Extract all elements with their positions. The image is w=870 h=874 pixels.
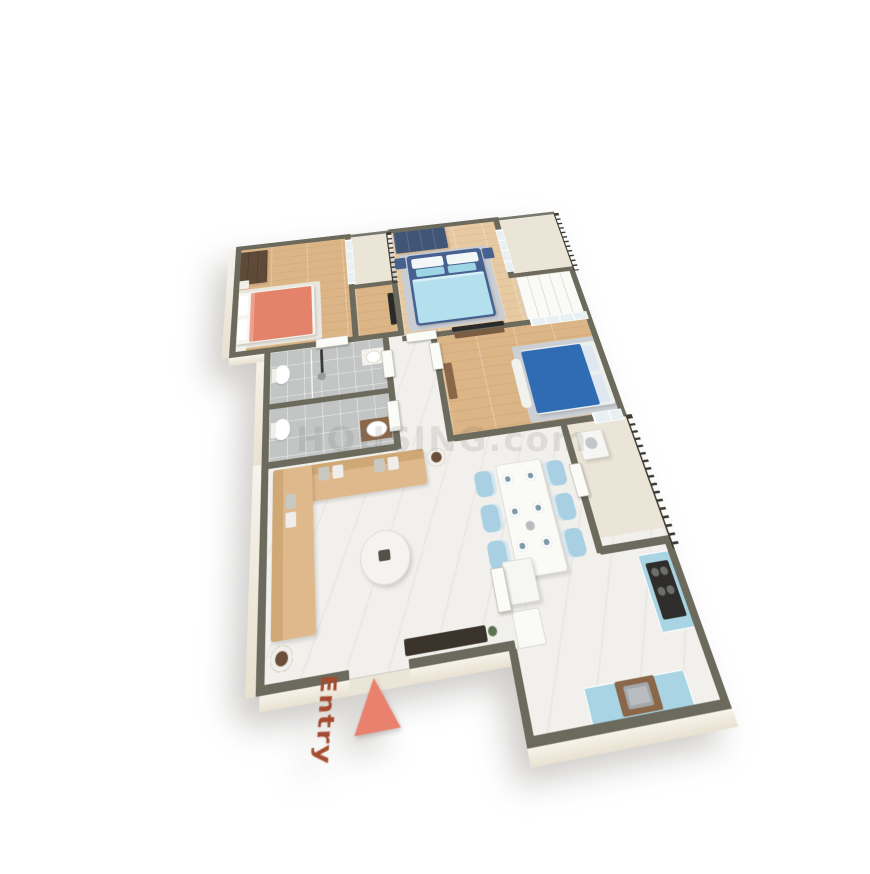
- sofa-pillow-6: [285, 511, 296, 528]
- entry-arrow-icon: [351, 674, 400, 736]
- sofa-pillow-5: [286, 493, 297, 509]
- sofa-pillow-2: [332, 464, 344, 479]
- watermark: HOUSING.com: [296, 420, 588, 460]
- bed-coral-pillow-1: [238, 295, 248, 316]
- coffee-table-decor: [378, 549, 391, 562]
- sofa-pillow-1: [318, 466, 329, 481]
- floorplan: Entry: [196, 195, 764, 871]
- toilet-tank-bathroom2: [271, 423, 276, 439]
- sofa-corner-back: [271, 469, 284, 642]
- toilet-tank-bathroom1: [271, 369, 276, 384]
- bed-coral-blanket: [249, 286, 313, 342]
- sofa-pillow-3: [374, 458, 386, 473]
- bed-coral-pillow-2: [237, 319, 248, 341]
